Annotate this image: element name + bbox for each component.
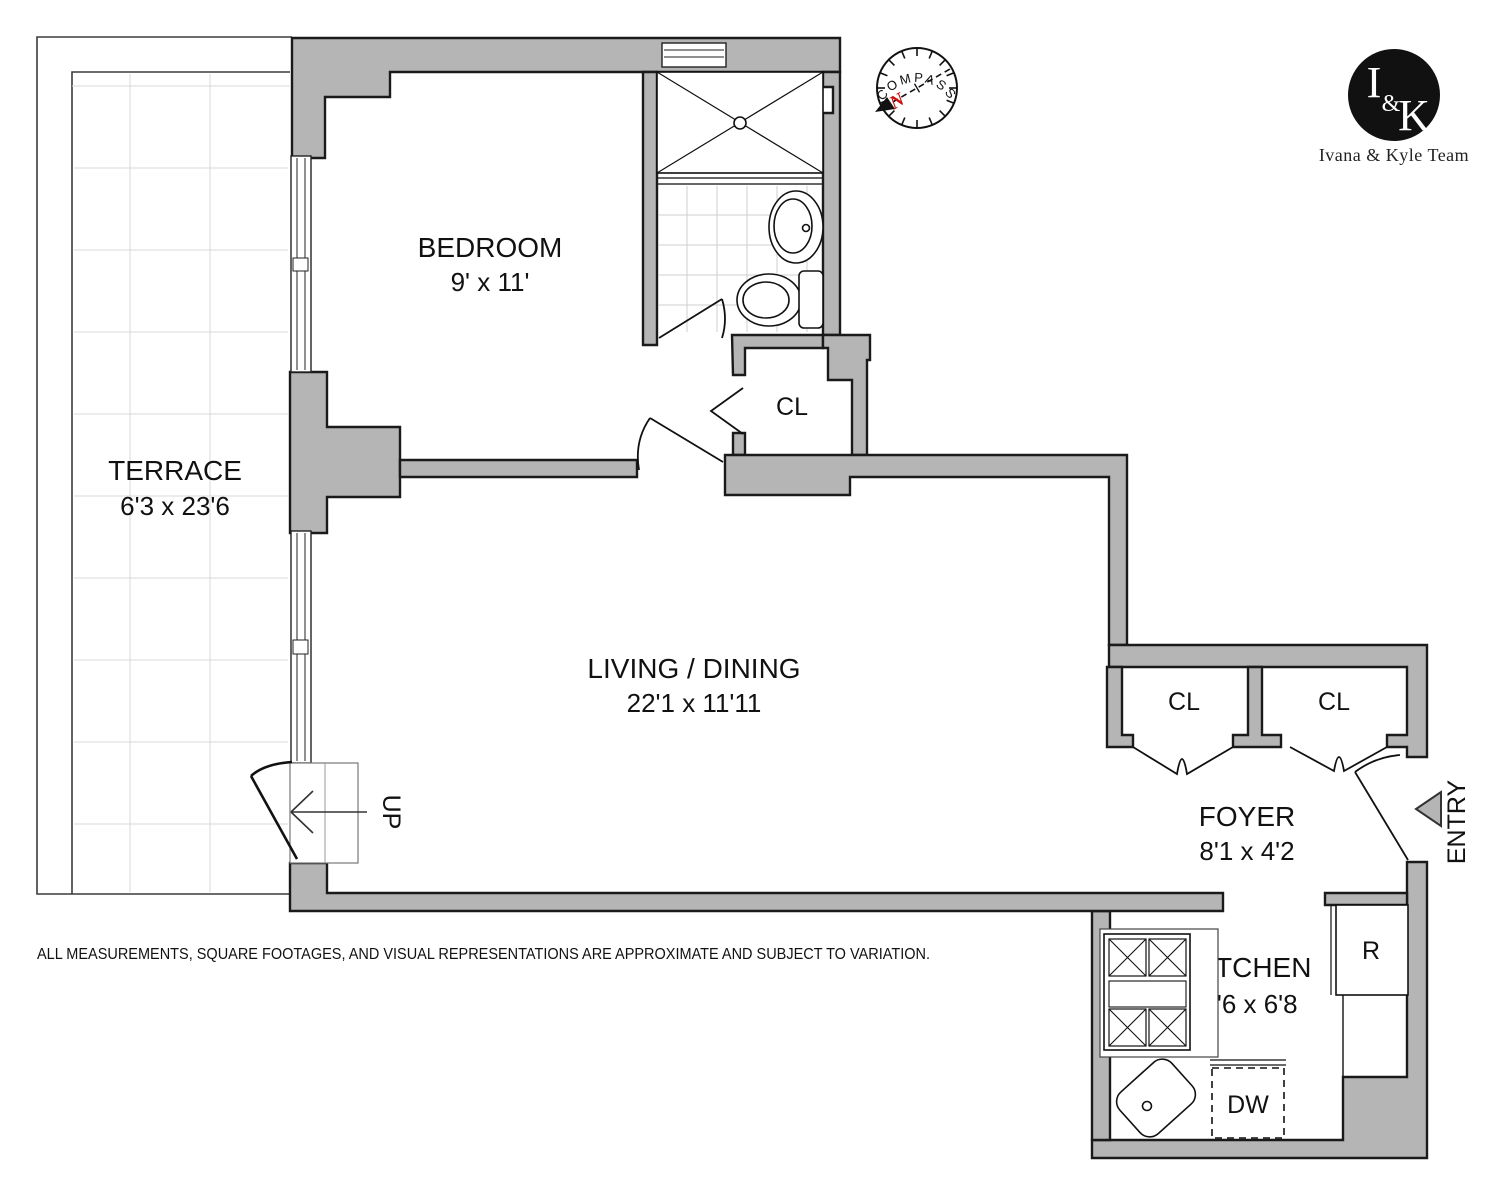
refrigerator-label: R	[1362, 937, 1380, 965]
shower-drain	[734, 117, 746, 129]
terrace-label: TERRACE	[108, 455, 242, 486]
compass: COMPASS N	[873, 48, 960, 128]
foyer: FOYER 8'1 x 4'2 ENTRY	[1199, 755, 1471, 866]
entry-arrow-icon	[1416, 792, 1441, 826]
wall-terrace-pillar	[290, 372, 400, 533]
wall-bath-right	[823, 72, 840, 335]
logo-monogram-k: K	[1398, 91, 1430, 140]
terrace-door-arc	[251, 762, 292, 776]
kitchen-sink-drain	[1143, 1102, 1152, 1111]
foyer-closet-left-label: CL	[1168, 688, 1200, 716]
up-platform	[290, 763, 358, 863]
bathroom	[657, 72, 823, 338]
living-dims: 22'1 x 11'11	[627, 688, 762, 718]
up-label: UP	[377, 795, 405, 830]
closet-right-bifold-door	[1290, 747, 1387, 771]
bedroom-closet-door	[711, 388, 743, 434]
wall-closet-divider	[1233, 667, 1281, 747]
bedroom-door-leaf	[650, 418, 723, 462]
entry-door-arc	[1355, 755, 1400, 772]
wall-living-top-right	[725, 455, 1127, 645]
floor-plan-canvas: TERRACE 6'3 x 23'6	[0, 0, 1500, 1199]
foyer-dims: 8'1 x 4'2	[1199, 836, 1294, 866]
bedroom-terrace-window	[291, 156, 311, 372]
dishwasher: DW	[1210, 1060, 1286, 1138]
wall-closet1-left	[1107, 667, 1133, 747]
bedroom-closet-label: CL	[776, 393, 808, 421]
wall-kitchen-entry-right	[1325, 893, 1407, 905]
wall-closet-right-corner	[823, 335, 870, 455]
brand-logo: I & K Ivana & Kyle Team	[1319, 49, 1469, 165]
wall-bedroom-bottom	[400, 460, 637, 477]
kitchen-sink	[1111, 1054, 1200, 1142]
closet-left-bifold-door	[1133, 747, 1233, 774]
up-step: UP	[251, 762, 405, 863]
living-dining: LIVING / DINING 22'1 x 11'11	[587, 653, 800, 718]
bathroom-window	[662, 43, 726, 67]
logo-team-name: Ivana & Kyle Team	[1319, 145, 1469, 165]
foyer-closet-right-label: CL	[1318, 688, 1350, 716]
wall-bed-bath-divider	[643, 72, 657, 345]
terrace-dims: 6'3 x 23'6	[120, 491, 230, 521]
terrace-area: TERRACE 6'3 x 23'6	[37, 37, 292, 894]
disclaimer-text: ALL MEASUREMENTS, SQUARE FOOTAGES, AND V…	[37, 946, 930, 963]
living-label: LIVING / DINING	[587, 653, 800, 684]
toilet-bowl-inner	[743, 282, 789, 318]
wall-closet-top	[732, 335, 823, 375]
foyer-label: FOYER	[1199, 801, 1295, 832]
bedroom-door-arc	[638, 418, 650, 470]
bedroom-closet: CL	[711, 388, 808, 434]
wall-closet-jamb	[733, 433, 745, 455]
sink-faucet	[803, 225, 810, 232]
entry-label: ENTRY	[1443, 780, 1471, 865]
bedroom: BEDROOM 9' x 11'	[418, 232, 723, 470]
bedroom-label: BEDROOM	[418, 232, 563, 263]
logo-monogram-i: I	[1367, 58, 1382, 107]
dishwasher-label: DW	[1227, 1091, 1269, 1119]
wall-living-bottom	[290, 863, 1223, 911]
entry-door-leaf	[1355, 772, 1408, 860]
floor-plan-page: TERRACE 6'3 x 23'6	[0, 0, 1500, 1199]
range	[1104, 934, 1190, 1050]
bedroom-dims: 9' x 11'	[451, 267, 530, 297]
living-terrace-window	[291, 531, 311, 763]
refrigerator: R	[1331, 905, 1408, 995]
toilet-tank	[799, 271, 823, 328]
